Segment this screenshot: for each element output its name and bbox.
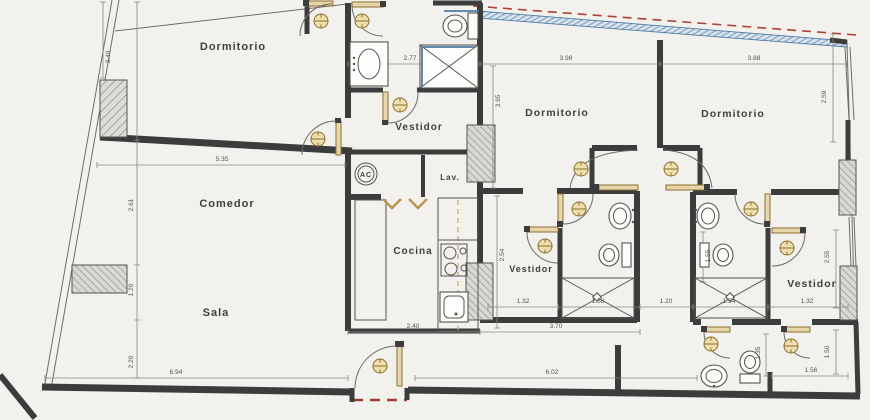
pillar xyxy=(100,80,127,137)
dimension-label: 2.40 xyxy=(407,323,420,330)
toilet-icon xyxy=(599,243,631,267)
pillar xyxy=(839,160,856,215)
dimension-label: 2.54 xyxy=(499,248,506,261)
door-knob-icon xyxy=(311,132,325,146)
dimension-label: 1.20 xyxy=(660,298,673,305)
dimension-label: 2.61 xyxy=(128,198,135,211)
room-label-sala: Sala xyxy=(203,307,230,319)
shower-icon xyxy=(420,45,478,88)
pillar xyxy=(466,263,493,320)
door-knob-icon xyxy=(704,337,718,351)
ac-label: AC xyxy=(360,172,372,179)
dimension-label: 1.50 xyxy=(824,345,831,358)
dimension-label: 3.40 xyxy=(105,50,112,63)
floor-plan-svg: AC xyxy=(0,0,870,420)
ac-unit-icon: AC xyxy=(355,163,377,185)
dimension-label: 1.56 xyxy=(805,367,818,374)
exterior-wall-bottom xyxy=(42,387,352,392)
dimension-label: 3.95 xyxy=(495,94,502,107)
room-label-cocina: Cocina xyxy=(393,246,432,257)
dimension-label: 3.98 xyxy=(560,55,573,62)
dimension-label: 2.59 xyxy=(821,90,828,103)
door-knob-icon xyxy=(664,162,678,176)
dimension-label: 3.70 xyxy=(550,323,563,330)
dimension-label: 2.55 xyxy=(824,250,831,263)
door-knob-icon xyxy=(393,98,407,112)
kitchen-sink-icon xyxy=(440,292,468,322)
dimension-label: 6.94 xyxy=(170,369,183,376)
room-label-lavanderia: Lav. xyxy=(440,173,459,182)
door-knob-icon xyxy=(355,14,369,28)
room-label-comedor: Comedor xyxy=(199,198,254,210)
room-label-dormitorio-2: Dormitorio xyxy=(525,107,589,119)
dimension-label: 1.35 xyxy=(755,346,762,359)
room-label-vestidor-2: Vestidor xyxy=(509,264,553,274)
floor-plan-document: AC xyxy=(0,0,870,420)
door-knob-icon xyxy=(373,359,387,373)
door-knob-icon xyxy=(744,202,758,216)
dimension-label: 6.02 xyxy=(546,369,559,376)
dimension-label: 1.58 xyxy=(592,298,605,305)
dimension-label: 2.20 xyxy=(128,355,135,368)
dimension-label: 1.32 xyxy=(801,298,814,305)
dimension-label: 1.20 xyxy=(128,283,135,296)
dimension-label: 1.54 xyxy=(723,298,736,305)
wall xyxy=(830,40,847,42)
dimension-label: 3.88 xyxy=(748,55,761,62)
pillar xyxy=(840,266,857,320)
room-label-dormitorio-3: Dormitorio xyxy=(701,108,765,120)
door-knob-icon xyxy=(574,162,588,176)
door-knob-icon xyxy=(314,14,328,28)
sink-icon xyxy=(701,365,727,387)
door-knob-icon xyxy=(784,339,798,353)
dimension-label: 5.35 xyxy=(216,156,229,163)
door-knob-icon xyxy=(538,239,552,253)
room-label-vestidor-3: Vestidor xyxy=(787,278,836,290)
dimension-label: 2.77 xyxy=(404,55,417,62)
door-knob-icon xyxy=(780,241,794,255)
wall xyxy=(856,322,858,394)
dimension-label: 1.32 xyxy=(517,298,530,305)
room-label-dormitorio-1: Dormitorio xyxy=(200,41,266,53)
pillar xyxy=(72,265,127,293)
dimension-label: 1.55 xyxy=(705,249,712,262)
pillar xyxy=(467,125,495,182)
sink-icon xyxy=(350,42,388,86)
room-label-vestidor-1: Vestidor xyxy=(395,122,442,133)
door-knob-icon xyxy=(572,202,586,216)
